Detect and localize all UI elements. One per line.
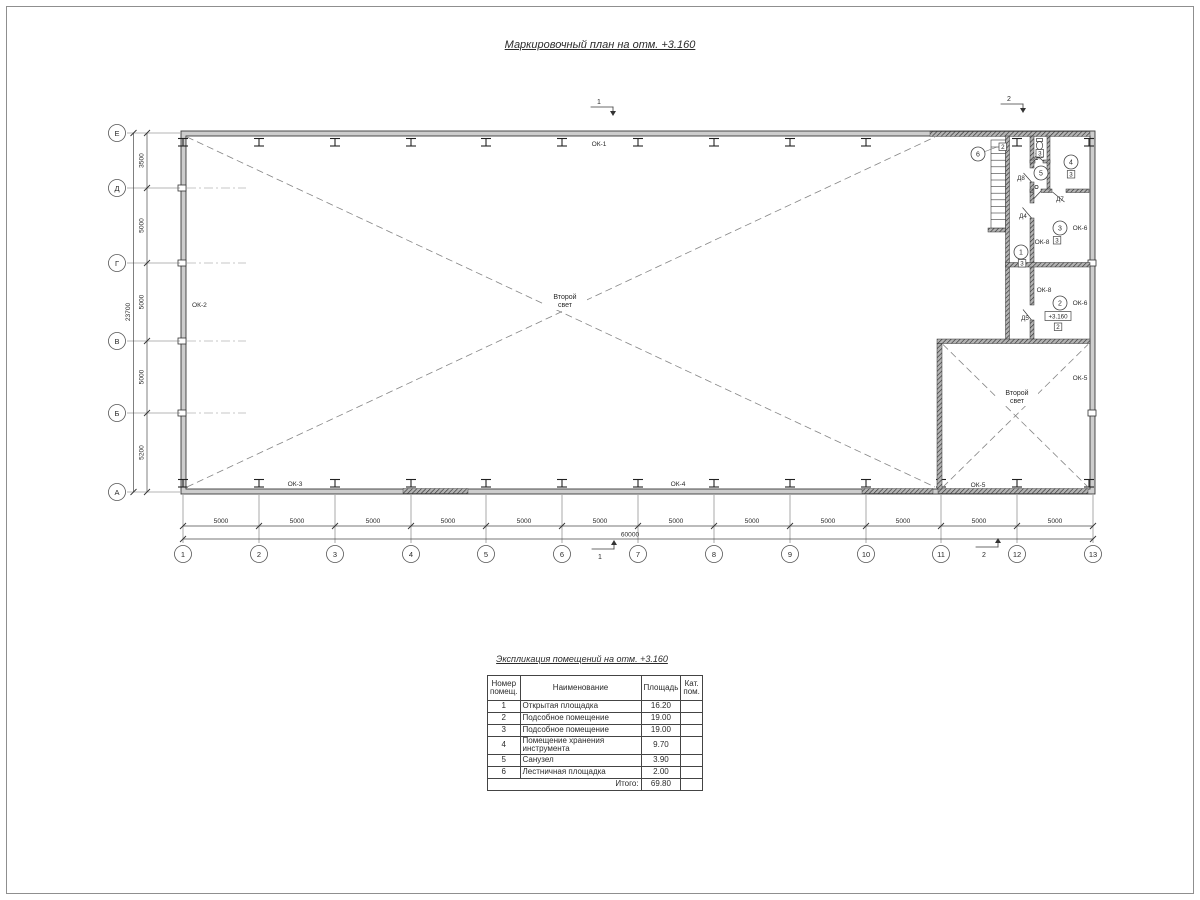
window-label-ok8-room2: ОК-8 [1037, 287, 1052, 294]
cell-cat [681, 725, 703, 737]
total-label: Итого: [488, 778, 642, 790]
section-mark-2-bottom: 2 [982, 552, 986, 559]
column-square-icon [1088, 410, 1096, 416]
axis-bubble-5: 5 [484, 550, 488, 559]
axis-bubble-A: А [114, 488, 119, 497]
window-label-ok5-bottom: ОК-5 [971, 482, 986, 489]
staircase [991, 140, 1006, 228]
axis-bubble-4: 4 [409, 550, 413, 559]
cell-num: 6 [488, 766, 521, 778]
masonry-top [930, 132, 1090, 137]
cell-num: 3 [488, 725, 521, 737]
cell-cat [681, 766, 703, 778]
axis-bubble-B: Б [115, 409, 120, 418]
table-title: Экспликация помещений на отм. +3.160 [470, 654, 694, 664]
masonry-bottom-2 [862, 489, 933, 494]
dim-bay: 5000 [972, 518, 987, 525]
total-cat-empty [681, 778, 703, 790]
bottom-dimensions: 5000 5000 5000 5000 5000 5000 5000 5000 … [180, 495, 1096, 543]
axis-bubble-6: 6 [560, 550, 564, 559]
window-label-ok4: ОК-4 [671, 481, 686, 488]
room-tag-6: 2 [1001, 144, 1005, 151]
dim-bay: 5000 [821, 518, 836, 525]
explication-table: Номер помещ. Наименование Площадь Кат. п… [487, 675, 703, 791]
dim-v-5: 5200 [139, 445, 146, 460]
room-number-4: 4 [1069, 160, 1073, 167]
room-tag-4: 3 [1069, 172, 1073, 179]
cell-name: Санузел [520, 754, 641, 766]
room-number-3: 3 [1058, 226, 1062, 233]
cell-area: 19.00 [641, 713, 681, 725]
cell-area: 2.00 [641, 766, 681, 778]
second-light-2-line2: свет [1010, 398, 1025, 405]
window-label-ok6-room2: ОК-6 [1073, 300, 1088, 307]
cell-num: 2 [488, 713, 521, 725]
cell-cat [681, 737, 703, 755]
cell-name: Подсобное помещение [520, 713, 641, 725]
axis-bubble-8: 8 [712, 550, 716, 559]
room-number-2: 2 [1058, 301, 1062, 308]
dim-bay: 5000 [1048, 518, 1063, 525]
window-label-ok8-room3: ОК-8 [1035, 239, 1050, 246]
dim-bay: 5000 [441, 518, 456, 525]
section-mark-1-top: 1 [597, 99, 601, 106]
window-label-ok2: ОК-2 [192, 302, 207, 309]
elevation-mark: +3.160 [1048, 313, 1068, 320]
cell-num: 5 [488, 754, 521, 766]
table-row: 3 Подсобное помещение 19.00 [488, 725, 703, 737]
axis-bubble-3: 3 [333, 550, 337, 559]
dim-bay: 5000 [745, 518, 760, 525]
dim-total-width: 60000 [621, 532, 640, 539]
exterior-walls [181, 131, 1095, 494]
dim-bay: 5000 [669, 518, 684, 525]
masonry-bottom-3 [938, 489, 1088, 494]
table-row: 1 Открытая площадка 16.20 [488, 701, 703, 713]
dim-v-3: 5000 [139, 294, 146, 309]
col-header-cat: Кат. пом. [681, 676, 703, 701]
table-title-text: Экспликация помещений на отм. +3.160 [496, 654, 668, 664]
dim-bay: 5000 [366, 518, 381, 525]
room-number-6: 6 [976, 152, 980, 159]
room-tag-3: 3 [1055, 238, 1059, 245]
door-label-d4: Д4 [1019, 213, 1027, 220]
room-number-5: 5 [1039, 171, 1043, 178]
axis-bubble-7: 7 [636, 550, 640, 559]
dim-bay: 5000 [290, 518, 305, 525]
table-row: 2 Подсобное помещение 19.00 [488, 713, 703, 725]
cell-area: 3.90 [641, 754, 681, 766]
cell-area: 19.00 [641, 725, 681, 737]
cell-cat [681, 713, 703, 725]
dim-v-4: 5000 [139, 369, 146, 384]
room-tag-1: 3 [1020, 261, 1024, 268]
cell-cat [681, 754, 703, 766]
cell-name: Подсобное помещение [520, 725, 641, 737]
cell-name: Открытая площадка [520, 701, 641, 713]
axis-bubble-E: Е [114, 129, 119, 138]
section-mark-2-top: 2 [1007, 96, 1011, 103]
col-header-number: Номер помещ. [488, 676, 521, 701]
dim-v-2: 5000 [139, 218, 146, 233]
cell-cat [681, 701, 703, 713]
axis-bubble-D: Д [114, 184, 119, 193]
room-number-1: 1 [1019, 250, 1023, 257]
second-light-1-line2: свет [558, 302, 573, 309]
cell-num: 4 [488, 737, 521, 755]
second-light-1-line1: Второй [553, 293, 576, 301]
door-label-d5: Д5 [1021, 315, 1029, 322]
door-label-d8-left: Д8 [1017, 175, 1025, 182]
axis-bubble-13: 13 [1089, 550, 1097, 559]
table-row: 4 Помещение хранения инструмента 9.70 [488, 737, 703, 755]
axis-bubble-9: 9 [788, 550, 792, 559]
room-tag-2: 2 [1056, 324, 1060, 331]
left-dimensions: 3500 5000 5000 5000 5200 23700 [125, 130, 180, 495]
axis-bubble-2: 2 [257, 550, 261, 559]
cell-area: 16.20 [641, 701, 681, 713]
cell-name: Лестничная площадка [520, 766, 641, 778]
window-label-ok1: ОК-1 [592, 141, 607, 148]
table-row: 6 Лестничная площадка 2.00 [488, 766, 703, 778]
window-label-ok6-room3: ОК-6 [1073, 225, 1088, 232]
cell-area: 9.70 [641, 737, 681, 755]
table-row: 5 Санузел 3.90 [488, 754, 703, 766]
second-light-2-line1: Второй [1005, 389, 1028, 397]
section-mark-1-bottom: 1 [598, 554, 602, 561]
left-axis-bubbles: Е Д Г В Б А [109, 125, 126, 501]
axis-bubble-1: 1 [181, 550, 185, 559]
axis-bubble-V: В [114, 337, 119, 346]
cell-name: Помещение хранения инструмента [520, 737, 641, 755]
dim-v-1: 3500 [139, 153, 146, 168]
table-header-row: Номер помещ. Наименование Площадь Кат. п… [488, 676, 703, 701]
axis-bubble-11: 11 [937, 550, 945, 559]
cell-num: 1 [488, 701, 521, 713]
total-value: 69.80 [641, 778, 681, 790]
table-total-row: Итого: 69.80 [488, 778, 703, 790]
dim-bay: 5000 [214, 518, 229, 525]
col-header-name: Наименование [520, 676, 641, 701]
col-header-area: Площадь [641, 676, 681, 701]
masonry-bottom-1 [403, 489, 468, 494]
drawing-sheet: Маркировочный план на отм. +3.160 [0, 0, 1200, 900]
axis-bubble-12: 12 [1013, 550, 1021, 559]
axis-bubble-G: Г [115, 259, 119, 268]
bottom-axis-bubbles: 1 2 3 4 5 6 7 8 9 10 11 12 13 [175, 546, 1102, 563]
room-tag-5: 3 [1038, 151, 1042, 158]
dim-bay: 5000 [517, 518, 532, 525]
dim-bay: 5000 [593, 518, 608, 525]
window-label-ok5-right: ОК-5 [1073, 375, 1088, 382]
axis-bubble-10: 10 [862, 550, 870, 559]
dim-bay: 5000 [896, 518, 911, 525]
door-label-d7: Д7 [1056, 196, 1064, 203]
window-label-ok3: ОК-3 [288, 481, 303, 488]
dim-total-height: 23700 [125, 303, 132, 322]
